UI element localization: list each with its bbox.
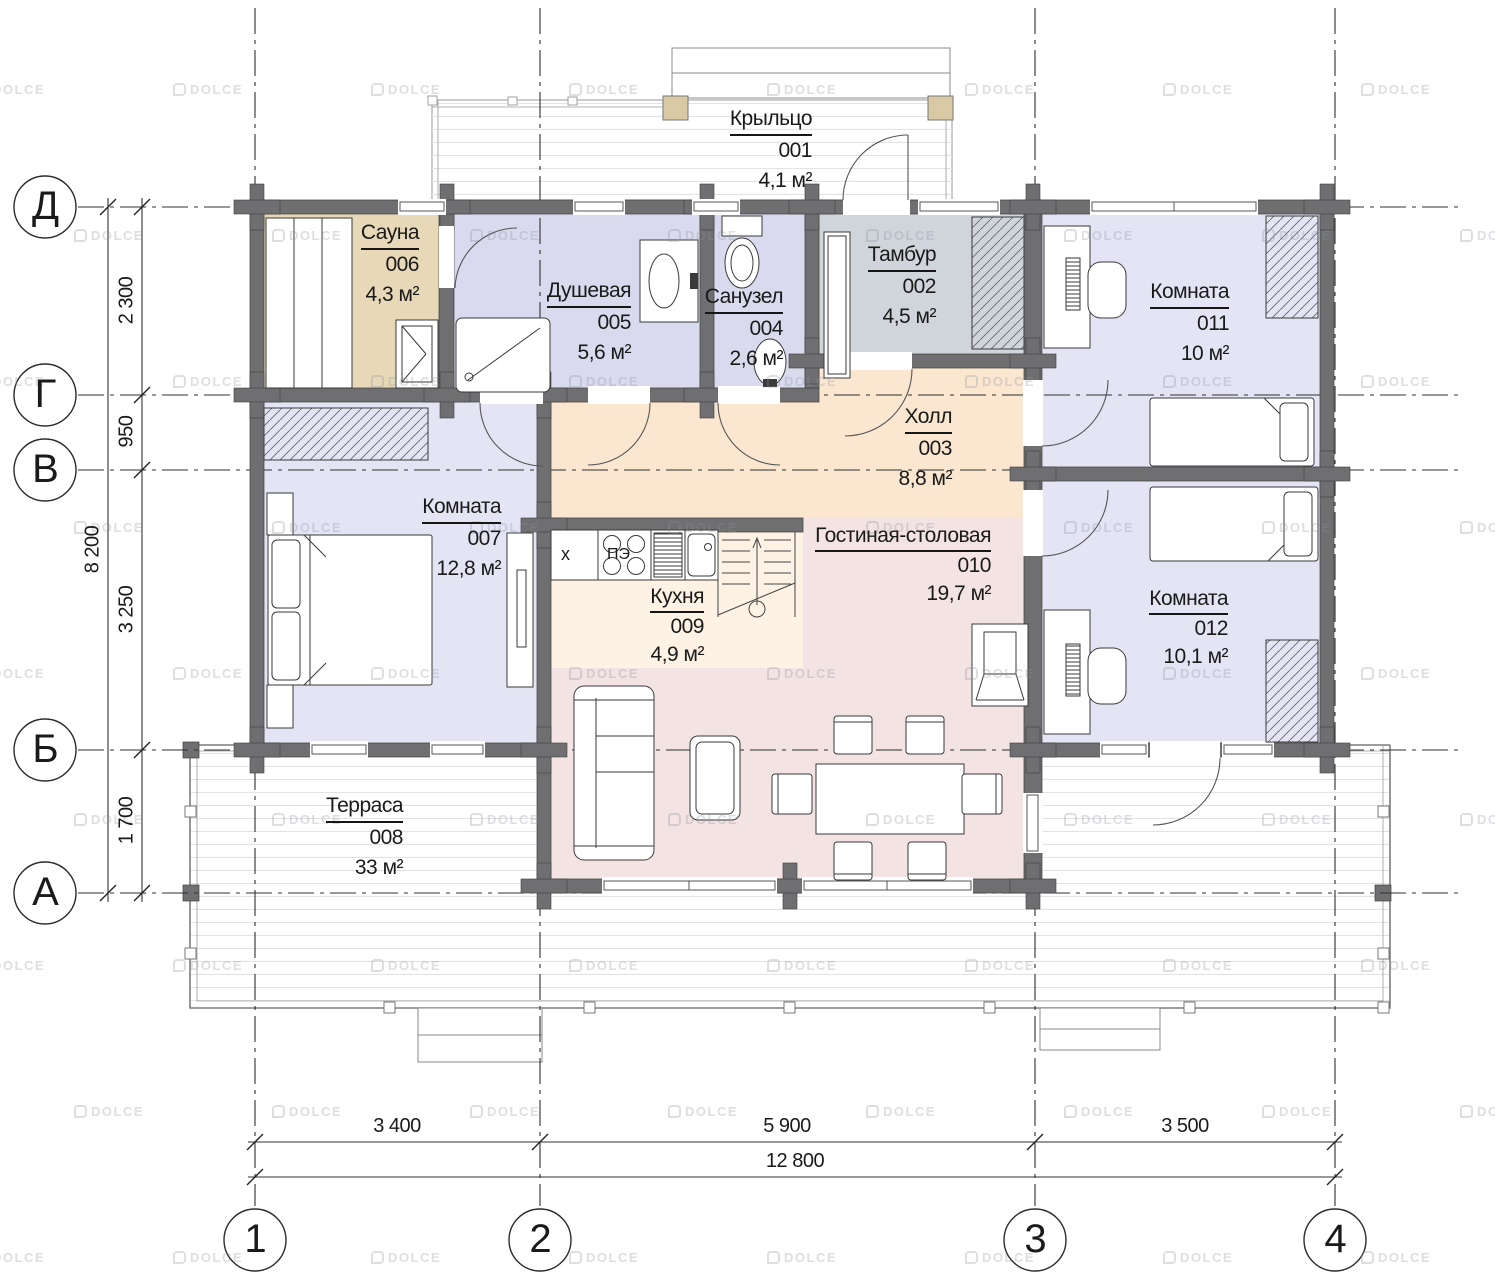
floor-plan-page: DOLCEDOLCEDOLCEDOLCEDOLCEDOLCEDOLCEDOLCE…: [0, 0, 1495, 1288]
porch: [428, 48, 953, 200]
floor-plan-drawing: [0, 0, 1495, 1288]
